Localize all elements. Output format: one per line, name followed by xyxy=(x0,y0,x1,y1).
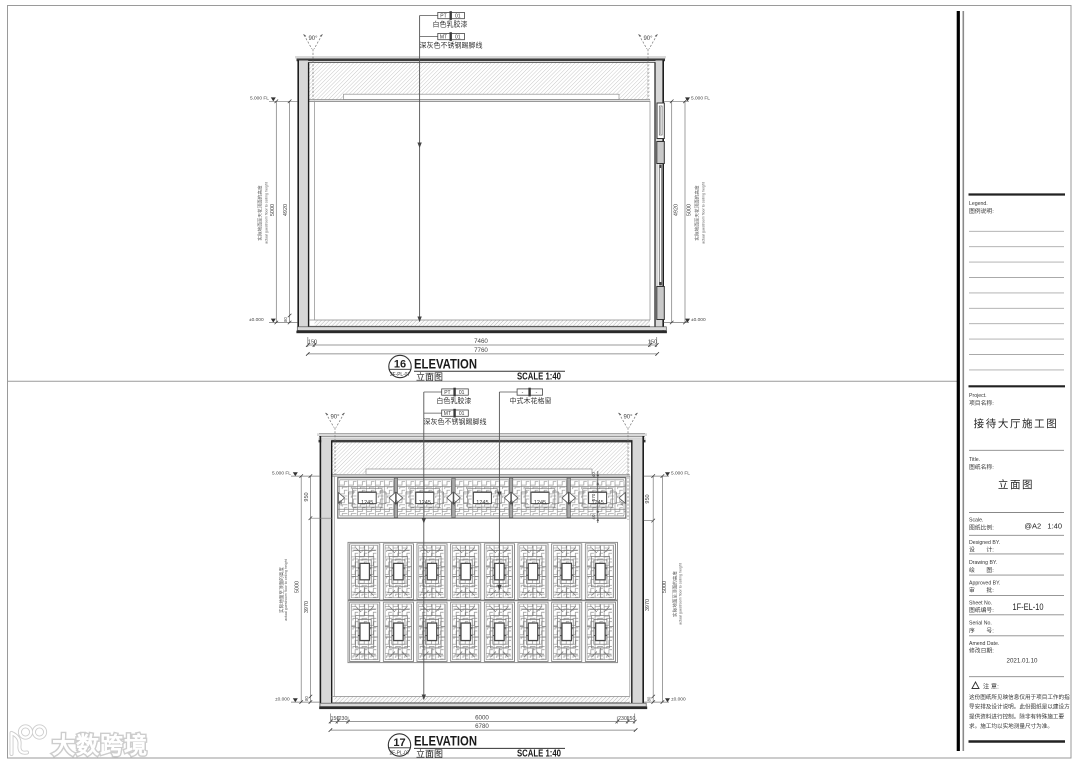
svg-text:注 意:: 注 意: xyxy=(983,683,999,691)
svg-text:01: 01 xyxy=(455,34,461,40)
svg-text:6780: 6780 xyxy=(475,723,489,730)
svg-text:230: 230 xyxy=(339,716,348,722)
svg-text:这份图纸所见映信息仅用于项目工作的指: 这份图纸所见映信息仅用于项目工作的指 xyxy=(969,693,1070,701)
svg-text:接待大厅施工图: 接待大厅施工图 xyxy=(974,417,1059,430)
svg-text:Amend Date.: Amend Date. xyxy=(969,641,999,647)
svg-text:950: 950 xyxy=(304,492,310,501)
svg-text:Sheet No.: Sheet No. xyxy=(969,601,992,607)
svg-text:150: 150 xyxy=(308,340,317,346)
svg-text:3970: 3970 xyxy=(645,599,651,611)
svg-text:90°: 90° xyxy=(643,36,653,42)
svg-text:5.000 FL: 5.000 FL xyxy=(250,96,269,102)
svg-text:80: 80 xyxy=(647,696,652,701)
svg-text:实际地面至天花顶面的高度: 实际地面至天花顶面的高度 xyxy=(694,185,701,241)
svg-text:6000: 6000 xyxy=(475,715,489,722)
svg-text:40: 40 xyxy=(567,500,572,506)
svg-text:Designed BY.: Designed BY. xyxy=(969,540,1000,546)
svg-text:深灰色不锈钢踢脚线: 深灰色不锈钢踢脚线 xyxy=(420,41,483,50)
svg-text:图纸编号:: 图纸编号: xyxy=(969,606,994,614)
svg-text:导安排及设计说明。此份图纸是以建设方: 导安排及设计说明。此份图纸是以建设方 xyxy=(969,703,1070,711)
svg-text:2021.01.10: 2021.01.10 xyxy=(1007,658,1039,665)
svg-text:深灰色不锈钢踢脚线: 深灰色不锈钢踢脚线 xyxy=(424,417,487,426)
svg-text:40: 40 xyxy=(620,500,625,506)
svg-text:PT: PT xyxy=(440,13,446,19)
svg-text:实际地面至顶面的高度: 实际地面至顶面的高度 xyxy=(672,571,679,617)
svg-text:7760: 7760 xyxy=(474,347,488,354)
svg-text:Project.: Project. xyxy=(969,393,987,399)
svg-text:MT: MT xyxy=(440,34,447,40)
svg-text:90°: 90° xyxy=(308,36,318,42)
svg-text:ELEVATION: ELEVATION xyxy=(414,357,477,372)
svg-text:实际地面至天花顶面的高度: 实际地面至天花顶面的高度 xyxy=(257,185,264,241)
svg-text:actual guestroom floor to ceil: actual guestroom floor to ceiling height xyxy=(702,182,706,244)
svg-text:修改日期:: 修改日期: xyxy=(969,647,994,655)
svg-text:图纸名称:: 图纸名称: xyxy=(969,463,994,471)
svg-text:白色乳胶漆: 白色乳胶漆 xyxy=(436,396,471,405)
svg-text:Approved BY.: Approved BY. xyxy=(969,581,1000,587)
svg-text:80: 80 xyxy=(304,696,309,701)
svg-text:@A2 1:40: @A2 1:40 xyxy=(1024,522,1062,531)
svg-text:7460: 7460 xyxy=(474,338,488,345)
svg-text:90°: 90° xyxy=(623,415,633,421)
svg-text:40: 40 xyxy=(591,514,596,520)
svg-text:Scale.: Scale. xyxy=(969,518,983,524)
svg-text:5000: 5000 xyxy=(687,204,693,216)
svg-text:大数跨境: 大数跨境 xyxy=(52,732,148,758)
svg-text:40: 40 xyxy=(394,500,399,506)
svg-text:150: 150 xyxy=(627,716,636,722)
svg-text:2F-PL-07: 2F-PL-07 xyxy=(390,751,410,757)
svg-text:40: 40 xyxy=(338,500,343,506)
svg-text:绘 图:: 绘 图: xyxy=(969,566,994,574)
svg-text:求。施工均以实地测量尺寸为准。: 求。施工均以实地测量尺寸为准。 xyxy=(969,722,1053,730)
svg-text:150: 150 xyxy=(648,340,657,346)
svg-text:Drawing BY.: Drawing BY. xyxy=(969,560,997,566)
svg-text:actual guestroom floor to ceil: actual guestroom floor to ceiling height xyxy=(679,563,683,625)
svg-text:±0.000: ±0.000 xyxy=(249,317,264,323)
svg-text:ELEVATION: ELEVATION xyxy=(414,734,477,749)
svg-text:Title.: Title. xyxy=(969,457,980,463)
svg-text:3970: 3970 xyxy=(304,601,310,613)
svg-text:审 批:: 审 批: xyxy=(969,586,994,594)
svg-text:5000: 5000 xyxy=(270,204,276,216)
svg-text:设 计:: 设 计: xyxy=(969,546,994,554)
svg-text:80: 80 xyxy=(283,317,288,322)
svg-text:图纸比例:: 图纸比例: xyxy=(969,524,994,532)
svg-text:1245: 1245 xyxy=(361,500,373,506)
svg-text:白色乳胶漆: 白色乳胶漆 xyxy=(433,19,468,28)
svg-text:16: 16 xyxy=(394,358,406,370)
svg-text:1245: 1245 xyxy=(476,500,488,506)
svg-text:Legend.: Legend. xyxy=(969,201,988,207)
svg-text:950: 950 xyxy=(645,494,651,503)
svg-text:actual guestroom floor to ceil: actual guestroom floor to ceiling height xyxy=(284,559,288,621)
svg-text:±0.000: ±0.000 xyxy=(275,697,290,703)
svg-text:40: 40 xyxy=(509,500,514,506)
svg-text:立面图: 立面图 xyxy=(416,748,443,759)
svg-text:1245: 1245 xyxy=(419,500,431,506)
svg-text:1F-EL-10: 1F-EL-10 xyxy=(1013,602,1044,612)
svg-text:序 号:: 序 号: xyxy=(969,627,994,635)
svg-text:4920: 4920 xyxy=(674,204,680,216)
svg-text:17: 17 xyxy=(393,737,405,749)
svg-text:5.000 FL: 5.000 FL xyxy=(691,96,710,102)
svg-text:01: 01 xyxy=(459,411,465,417)
svg-text:870: 870 xyxy=(591,493,596,501)
svg-text:±0.000: ±0.000 xyxy=(691,317,706,323)
svg-text:±0.000: ±0.000 xyxy=(671,697,686,703)
svg-text:5.000 FL: 5.000 FL xyxy=(272,470,291,476)
svg-text:中式木花格窗: 中式木花格窗 xyxy=(510,396,552,405)
svg-text:01: 01 xyxy=(455,13,461,19)
svg-text:230: 230 xyxy=(618,716,627,722)
svg-text:提供资料进行控制。除非有特殊施工要: 提供资料进行控制。除非有特殊施工要 xyxy=(969,712,1065,720)
svg-text:4920: 4920 xyxy=(283,204,289,216)
svg-text:立面图: 立面图 xyxy=(998,478,1034,491)
svg-text:MT: MT xyxy=(444,411,451,417)
svg-text:SCALE 1:40: SCALE 1:40 xyxy=(517,372,561,383)
svg-text:SCALE 1:40: SCALE 1:40 xyxy=(517,749,561,760)
svg-text:90°: 90° xyxy=(330,415,340,421)
svg-text:Serial No.: Serial No. xyxy=(969,621,992,627)
svg-text:5000: 5000 xyxy=(662,581,668,593)
svg-text:PT: PT xyxy=(444,390,450,396)
svg-text:2F-PL-07: 2F-PL-07 xyxy=(390,372,410,378)
svg-text:1245: 1245 xyxy=(534,500,546,506)
svg-text:5000: 5000 xyxy=(295,581,301,593)
svg-text:图例说明:: 图例说明: xyxy=(969,207,994,215)
svg-text:01: 01 xyxy=(459,390,465,396)
svg-text:5.000 FL: 5.000 FL xyxy=(671,470,690,476)
svg-text:40: 40 xyxy=(452,500,457,506)
svg-text:40: 40 xyxy=(591,472,596,478)
svg-text:actual guestroom floor to ceil: actual guestroom floor to ceiling height xyxy=(265,182,269,244)
svg-text:项目名称:: 项目名称: xyxy=(969,399,994,407)
svg-text:立面图: 立面图 xyxy=(416,371,443,382)
